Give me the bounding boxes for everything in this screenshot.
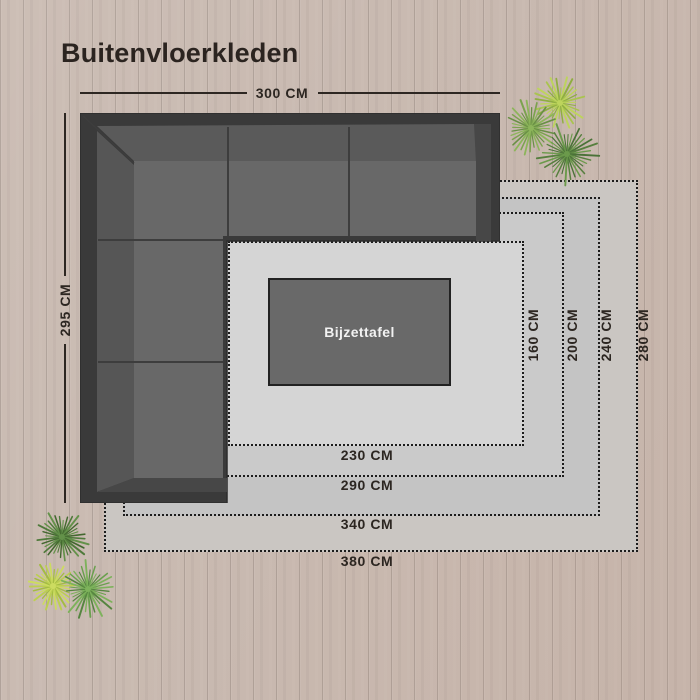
sofa-depth-dimension-line [64, 113, 66, 276]
sofa-depth-dimension-line [64, 344, 66, 503]
corner-sofa [80, 113, 500, 503]
sofa-backrest-top [97, 124, 484, 161]
sofa-width-dimension-line [318, 92, 500, 94]
rug-width-label-230: 230 CM [341, 447, 394, 463]
sofa-armrest-right [474, 124, 491, 241]
rug-height-label-200: 200 CM [564, 309, 580, 362]
page-title: Buitenvloerkleden [61, 38, 298, 69]
rug-size-diagram: Buitenvloerkleden Bijzettafel 300 CM 295… [0, 0, 700, 700]
rug-height-label-160: 160 CM [525, 309, 541, 362]
rug-width-label-340: 340 CM [341, 516, 394, 532]
sofa-backrest-left [97, 131, 134, 492]
sofa-seats [134, 161, 476, 478]
rug-height-label-240: 240 CM [598, 309, 614, 362]
sofa-width-dimension-line [80, 92, 247, 94]
rug-width-label-380: 380 CM [341, 553, 394, 569]
sofa-width-label: 300 CM [256, 85, 309, 101]
rug-height-label-280: 280 CM [635, 309, 651, 362]
sofa-depth-label: 295 CM [57, 284, 73, 337]
rug-width-label-290: 290 CM [341, 477, 394, 493]
